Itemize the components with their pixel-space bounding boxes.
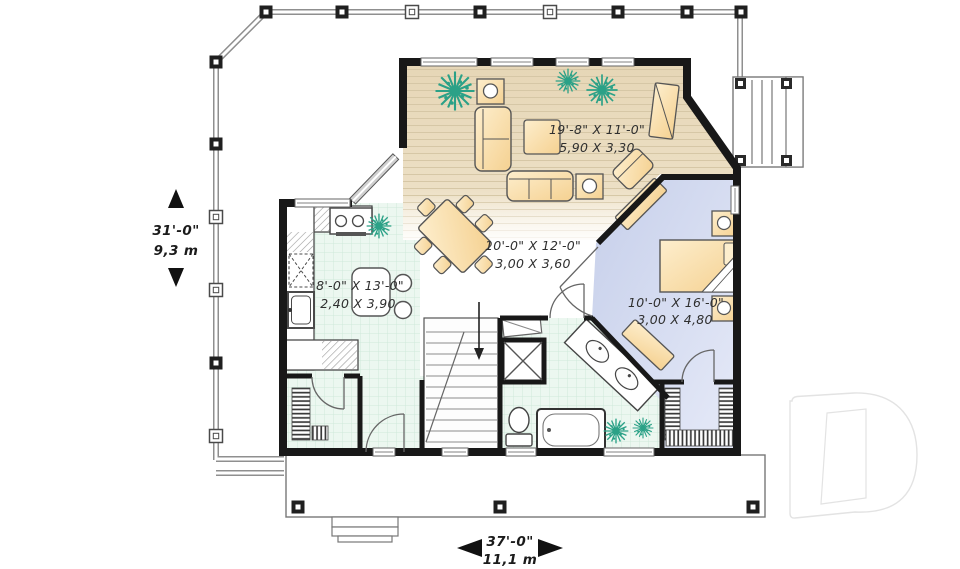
- width-metric: 11,1 m: [483, 552, 537, 568]
- porch-post: [210, 56, 223, 69]
- depth-imperial: 31'-0": [152, 223, 199, 239]
- porch-post: [292, 501, 305, 514]
- bedroom-dimensions-imperial: 10'-0" X 16'-0": [628, 295, 724, 310]
- porch-post: [210, 430, 223, 443]
- plant-icon: [556, 69, 581, 94]
- dining-room-dimensions-metric: 3,00 X 3,60: [495, 256, 570, 271]
- porch-post: [612, 6, 625, 19]
- side-table-lamp: [576, 174, 603, 199]
- bathroom-door-arc: [550, 284, 584, 318]
- porch-post: [210, 211, 223, 224]
- rear-exterior-stairs: [733, 77, 803, 167]
- arrow-down-icon: [168, 268, 184, 287]
- kitchen-dimensions-metric: 2,40 X 3,90: [320, 296, 395, 311]
- kitchen-dimensions-imperial: 8'-0" X 13'-0": [316, 278, 404, 293]
- wardrobe-shelving: [312, 426, 328, 440]
- porch-post: [735, 6, 748, 19]
- bedroom-dimensions-metric: 3,00 X 4,80: [637, 312, 712, 327]
- plant-icon: [436, 72, 475, 111]
- plant-icon: [586, 74, 617, 105]
- plant-icon: [633, 418, 654, 439]
- living-room-dimensions-imperial: 19'-8" X 11'-0": [549, 122, 645, 137]
- floor-plan: 19'-8" X 11'-0" 5,90 X 3,30 10'-0" X 12'…: [0, 0, 960, 569]
- floor-plan-svg: 19'-8" X 11'-0" 5,90 X 3,30 10'-0" X 12'…: [0, 0, 960, 569]
- watermark-d-logo: [790, 393, 917, 518]
- porch-post: [210, 357, 223, 370]
- porch-post: [336, 6, 349, 19]
- porch-post: [544, 6, 557, 19]
- plant-icon: [367, 214, 392, 239]
- width-imperial: 37'-0": [486, 534, 533, 550]
- dishwasher: [289, 254, 313, 287]
- patio-sliding-door: [350, 154, 399, 204]
- porch-post: [260, 6, 273, 19]
- porch-post: [210, 284, 223, 297]
- bed: [660, 240, 737, 292]
- front-porch: [286, 455, 765, 542]
- side-table-lamp: [477, 79, 504, 104]
- depth-metric: 9,3 m: [154, 243, 199, 259]
- toilet: [506, 408, 532, 447]
- staircase: [424, 302, 498, 452]
- arrow-up-icon: [168, 189, 184, 208]
- arrow-right-icon: [538, 539, 563, 557]
- front-steps: [332, 517, 398, 542]
- wardrobe-shelving: [292, 388, 310, 440]
- depth-dimension: 31'-0" 9,3 m: [152, 189, 199, 287]
- plant-icon: [604, 419, 629, 444]
- living-room-dimensions-metric: 5,90 X 3,30: [559, 140, 634, 155]
- wardrobe-shelving: [666, 430, 734, 446]
- porch-post: [681, 6, 694, 19]
- porch-post: [474, 6, 487, 19]
- porch-post: [210, 138, 223, 151]
- loveseat: [475, 107, 511, 171]
- porch-post: [494, 501, 507, 514]
- arrow-left-icon: [457, 539, 482, 557]
- sofa: [507, 171, 573, 201]
- porch-post: [747, 501, 760, 514]
- width-dimension: 37'-0" 11,1 m: [457, 534, 563, 568]
- dining-room-dimensions-imperial: 10'-0" X 12'-0": [485, 238, 581, 253]
- stove: [330, 208, 372, 236]
- bathtub: [537, 409, 605, 451]
- porch-post: [406, 6, 419, 19]
- chimney-chase: [502, 316, 544, 382]
- kitchen-sink: [288, 292, 314, 328]
